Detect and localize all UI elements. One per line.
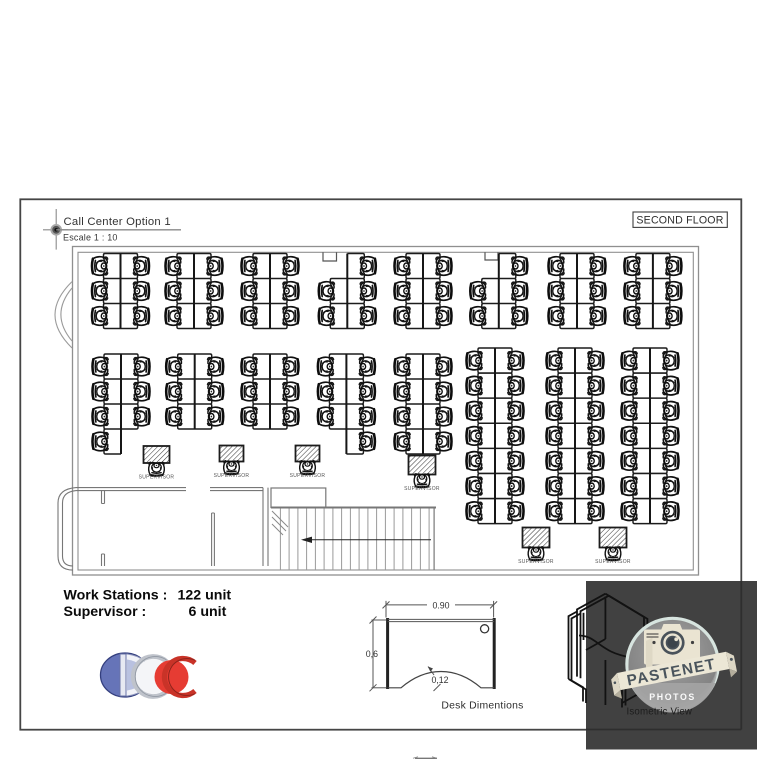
- svg-text:SUPERVISOR: SUPERVISOR: [595, 559, 631, 565]
- svg-text:Isometric View: Isometric View: [627, 707, 693, 718]
- svg-text:0,6: 0,6: [366, 649, 378, 659]
- svg-text:SUPERVISOR: SUPERVISOR: [518, 559, 554, 565]
- svg-text:SUPERVISOR: SUPERVISOR: [139, 475, 175, 481]
- svg-text:SECOND FLOOR: SECOND FLOOR: [636, 215, 723, 227]
- svg-text:Supervisor :6 unit: Supervisor :6 unit: [64, 604, 227, 620]
- svg-text:SUPERVISOR: SUPERVISOR: [404, 486, 440, 492]
- svg-text:Call Center Option 1: Call Center Option 1: [64, 216, 171, 228]
- svg-text:Desk Dimentions: Desk Dimentions: [441, 701, 523, 712]
- svg-text:SUPERVISOR: SUPERVISOR: [290, 473, 326, 479]
- svg-text:Escale 1 : 10: Escale 1 : 10: [63, 233, 118, 243]
- svg-text:0,12: 0,12: [431, 675, 448, 685]
- svg-text:0.90: 0.90: [432, 600, 449, 610]
- svg-text:SUPERVISOR: SUPERVISOR: [214, 473, 250, 479]
- svg-text:PHOTOS: PHOTOS: [649, 692, 696, 702]
- svg-text:Work Stations :122 unit: Work Stations :122 unit: [64, 588, 232, 604]
